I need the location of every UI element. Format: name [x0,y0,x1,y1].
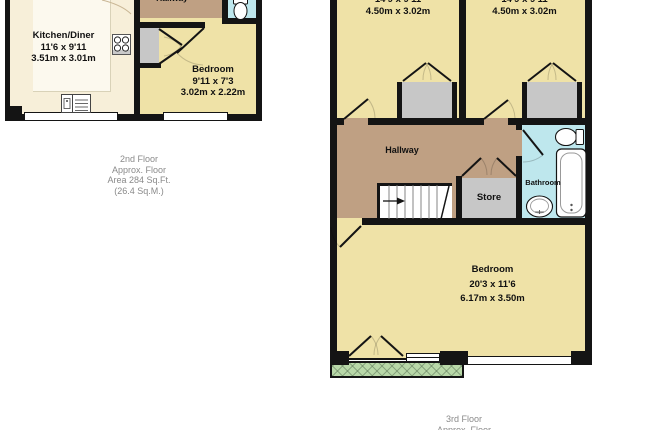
caption-line: 2nd Floor [58,154,220,165]
hallway-label-2nd: Hallway [138,0,206,3]
caption-line: Area 284 Sq.Ft. [58,175,220,186]
room-name: Bedroom [400,263,585,278]
room-size-imperial: 9'11 x 7'3 [163,76,263,88]
bedroom-left-label-3rd: 14'9 x 9'11 4.50m x 3.02m [337,0,459,18]
wall [330,0,337,362]
closet [140,28,159,64]
wall [5,0,10,121]
wall [368,118,459,125]
wall [577,82,582,118]
wall [440,351,468,365]
room-size-imperial: 11'6 x 9'11 [17,42,110,54]
wall [134,22,205,28]
wall [508,118,592,125]
caption-line: Approx. Floor [384,425,544,430]
wall [585,0,592,362]
wall [397,82,402,118]
wall [459,0,466,125]
bedroom-right-label-3rd: 14'9 x 9'11 4.50m x 3.02m [464,0,585,18]
room-size-imperial: 20'3 x 11'6 [400,278,585,293]
caption-line: 3rd Floor [384,414,544,425]
room-bathroom-3rd [522,118,585,218]
wardrobe [402,82,452,118]
wall [452,82,457,118]
bedroom-main-label-3rd: Bedroom 20'3 x 11'6 6.17m x 3.50m [400,263,585,307]
wall [466,118,484,125]
wall [330,351,349,365]
room-size-metric: 3.51m x 3.01m [17,53,110,65]
wall [222,18,262,24]
door-threshold [348,358,406,361]
wall [330,118,344,125]
window [467,356,572,365]
sink-unit-icon [61,94,91,113]
floor-caption-3rd: 3rd Floor Approx. Floor [384,414,544,430]
wall [522,82,527,118]
floorplan-image: Hallway Kitchen/Diner 11'6 x 9'11 3.51m … [0,0,645,430]
wall [571,351,592,365]
store-label: Store [462,192,516,203]
room-size-metric: 4.50m x 3.02m [337,6,459,18]
room-name: Bedroom [163,64,263,76]
window [406,353,440,362]
room-size-metric: 6.17m x 3.50m [400,292,585,307]
kitchen-diner-label: Kitchen/Diner 11'6 x 9'11 3.51m x 3.01m [17,30,110,65]
bedroom-label-2nd: Bedroom 9'11 x 7'3 3.02m x 2.22m [163,64,263,99]
window-frame-line [407,357,439,358]
window [163,112,228,121]
hob-front-band [113,50,130,54]
wall [140,63,161,68]
room-size-metric: 4.50m x 3.02m [464,6,585,18]
floor-caption-2nd: 2nd Floor Approx. Floor Area 284 Sq.Ft. … [58,154,220,196]
room-name: Kitchen/Diner [17,30,110,42]
wall [516,156,522,218]
room-size-metric: 3.02m x 2.22m [163,87,263,99]
caption-line: Approx. Floor [58,165,220,176]
wall [5,106,22,121]
staircase [377,183,452,220]
bathroom-label: Bathroom [517,178,569,187]
wall [362,218,592,225]
hob-icon [112,34,131,55]
wall [134,0,140,114]
hallway-label-3rd: Hallway [352,145,452,155]
caption-line: (26.4 Sq.M.) [58,186,220,197]
wardrobe [527,82,577,118]
wall [516,125,522,130]
